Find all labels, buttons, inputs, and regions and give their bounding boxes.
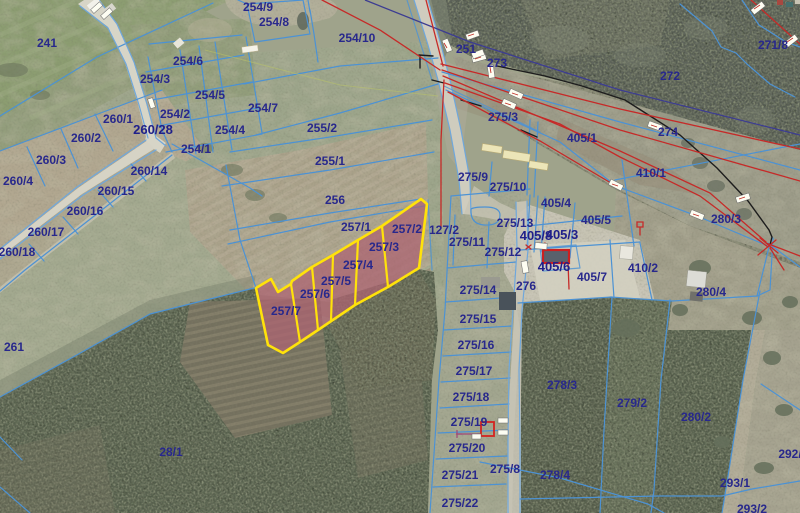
- svg-text:251: 251: [456, 42, 476, 56]
- svg-text:274: 274: [658, 125, 678, 139]
- svg-text:275/16: 275/16: [458, 338, 495, 352]
- svg-text:255/1: 255/1: [315, 154, 345, 168]
- svg-text:271/8: 271/8: [758, 38, 788, 52]
- svg-text:275/15: 275/15: [460, 312, 497, 326]
- svg-text:260/18: 260/18: [0, 245, 36, 259]
- svg-text:405/6: 405/6: [538, 259, 571, 274]
- svg-text:28/1: 28/1: [159, 445, 183, 459]
- svg-text:260/1: 260/1: [103, 112, 133, 126]
- svg-text:405/3: 405/3: [546, 227, 579, 242]
- svg-text:279/2: 279/2: [617, 396, 647, 410]
- svg-text:280/3: 280/3: [711, 212, 741, 226]
- svg-text:405/5: 405/5: [581, 213, 611, 227]
- svg-text:254/7: 254/7: [248, 101, 278, 115]
- svg-text:260/4: 260/4: [3, 174, 33, 188]
- svg-text:260/15: 260/15: [98, 184, 135, 198]
- svg-text:293/2: 293/2: [737, 502, 767, 513]
- svg-text:257/7: 257/7: [271, 304, 301, 318]
- svg-text:254/2: 254/2: [160, 107, 190, 121]
- svg-text:260/14: 260/14: [131, 164, 168, 178]
- svg-text:275/10: 275/10: [490, 180, 527, 194]
- svg-text:254/9: 254/9: [243, 0, 273, 14]
- svg-text:275/17: 275/17: [456, 364, 493, 378]
- svg-text:275/12: 275/12: [485, 245, 522, 259]
- svg-text:260/2: 260/2: [71, 131, 101, 145]
- svg-text:275/22: 275/22: [442, 496, 479, 510]
- svg-text:241: 241: [37, 36, 57, 50]
- svg-text:254/1: 254/1: [181, 142, 211, 156]
- svg-text:260/17: 260/17: [28, 225, 65, 239]
- svg-text:260/16: 260/16: [67, 204, 104, 218]
- svg-text:254/10: 254/10: [339, 31, 376, 45]
- svg-text:273: 273: [487, 56, 507, 70]
- svg-text:278/3: 278/3: [547, 378, 577, 392]
- svg-text:405/1: 405/1: [567, 131, 597, 145]
- svg-text:275/20: 275/20: [449, 441, 486, 455]
- svg-text:256: 256: [325, 193, 345, 207]
- svg-text:292/: 292/: [778, 447, 800, 461]
- svg-text:257/5: 257/5: [321, 274, 351, 288]
- svg-text:257/6: 257/6: [300, 287, 330, 301]
- svg-text:275/11: 275/11: [449, 235, 485, 249]
- svg-text:257/4: 257/4: [343, 258, 373, 272]
- svg-text:275/18: 275/18: [453, 390, 490, 404]
- svg-text:257/3: 257/3: [369, 240, 399, 254]
- svg-text:260/3: 260/3: [36, 153, 66, 167]
- svg-text:275/8: 275/8: [490, 462, 520, 476]
- svg-text:275/9: 275/9: [458, 170, 488, 184]
- svg-text:254/8: 254/8: [259, 15, 289, 29]
- svg-text:272: 272: [660, 69, 680, 83]
- svg-text:276: 276: [516, 279, 536, 293]
- svg-text:275/19: 275/19: [451, 415, 488, 429]
- svg-text:254/6: 254/6: [173, 54, 203, 68]
- svg-text:280/2: 280/2: [681, 410, 711, 424]
- svg-text:280/4: 280/4: [696, 285, 726, 299]
- svg-text:278/4: 278/4: [540, 468, 570, 482]
- svg-text:275/3: 275/3: [488, 110, 518, 124]
- svg-text:261: 261: [4, 340, 24, 354]
- svg-text:405/4: 405/4: [541, 196, 571, 210]
- svg-text:410/1: 410/1: [636, 166, 666, 180]
- svg-text:257/2: 257/2: [392, 222, 422, 236]
- svg-text:405/7: 405/7: [577, 270, 607, 284]
- svg-text:260/28: 260/28: [133, 122, 173, 137]
- svg-text:254/4: 254/4: [215, 123, 245, 137]
- svg-text:254/3: 254/3: [140, 72, 170, 86]
- svg-text:275/14: 275/14: [460, 283, 497, 297]
- svg-text:275/21: 275/21: [442, 468, 479, 482]
- svg-text:255/2: 255/2: [307, 121, 337, 135]
- svg-text:257/1: 257/1: [341, 220, 371, 234]
- svg-text:293/1: 293/1: [720, 476, 750, 490]
- svg-text:254/5: 254/5: [195, 88, 225, 102]
- svg-text:410/2: 410/2: [628, 261, 658, 275]
